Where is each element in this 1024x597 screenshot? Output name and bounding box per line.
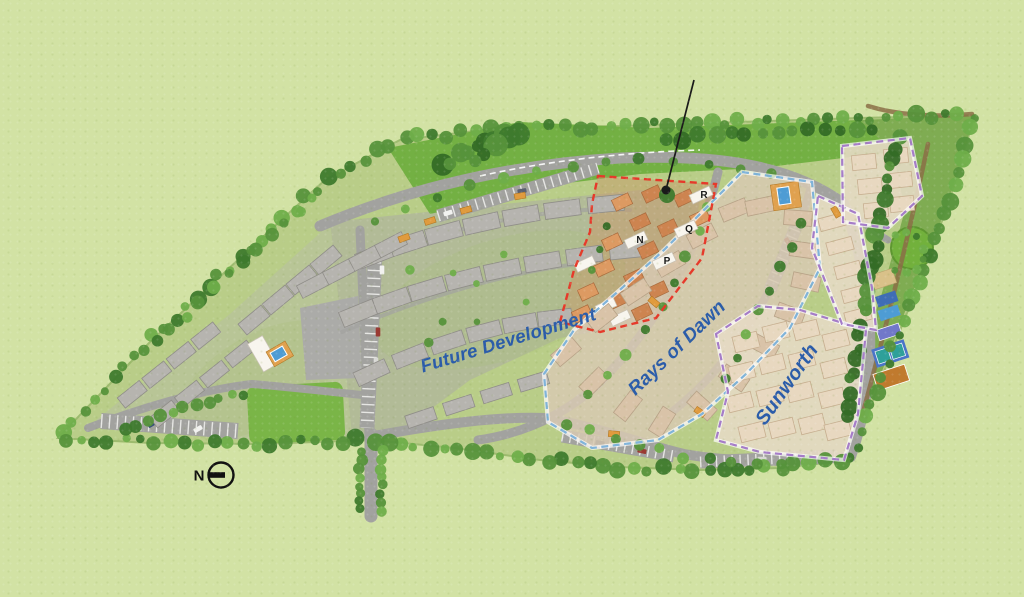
tree [169,408,179,418]
tree [523,299,530,306]
tree [633,153,645,165]
tree [899,315,911,327]
tree [401,204,410,213]
tree [210,269,222,281]
tree [251,441,262,452]
tree [884,161,894,171]
tree [962,119,978,135]
tree [136,435,145,444]
tree [885,359,894,368]
site-plan: Future Development Rays of Dawn Sunworth… [0,0,1024,597]
tree [182,312,193,323]
tree [66,417,77,428]
tree [439,318,447,326]
tree [689,126,705,142]
tree [655,458,672,475]
tree [450,270,457,277]
tree [464,179,476,191]
tree [941,109,950,118]
tree [772,126,785,139]
tree [321,438,334,451]
tree [925,111,938,124]
tree [903,268,912,277]
north-compass: N [194,463,234,488]
tree [902,228,910,236]
tree [844,373,854,383]
tree [882,173,892,183]
tree [473,280,480,287]
tree [584,424,594,434]
tree [204,397,216,409]
tree [877,191,894,208]
tree [262,438,277,453]
tree [99,435,113,449]
tree [146,436,160,450]
tree [607,121,616,130]
tree [741,329,751,339]
building-marker-r: R [700,190,708,201]
tree [758,128,769,139]
tree [265,228,279,242]
tree [426,129,437,140]
tree [752,458,763,469]
tree [869,384,886,401]
tree [800,121,815,136]
tree [192,439,204,451]
tree [834,454,850,470]
tree [588,266,596,274]
building [851,153,876,170]
tree [355,504,364,513]
tree [796,218,807,229]
tree [191,398,204,411]
building [857,177,882,194]
tree [882,113,891,122]
tree [684,463,700,479]
tree [937,206,952,221]
tree [568,161,579,172]
tree [633,117,650,134]
tree [354,496,363,505]
tree [59,434,73,448]
tree [522,453,535,466]
tree [162,323,174,335]
tree [532,166,541,175]
tree [152,335,164,347]
tree [81,406,91,416]
building-marker-q: Q [685,224,693,235]
tree [532,121,542,131]
tree [836,110,849,123]
tree [902,299,915,312]
tree [408,443,417,452]
tree [705,160,714,169]
tree [611,434,621,444]
tree [819,123,832,136]
tree [278,435,292,449]
site-plan-canvas: Future Development Rays of Dawn Sunworth… [0,0,1024,597]
tree [654,443,664,453]
tree [774,261,785,272]
tree [583,390,592,399]
tree [948,177,963,192]
tree [860,304,872,316]
tree [786,125,797,136]
tree [181,302,190,311]
tree [296,435,305,444]
tree [296,207,306,217]
tree [405,265,414,274]
tree [376,506,386,516]
tree [601,157,610,166]
tree [620,118,632,130]
tree [207,281,220,294]
tree [469,155,481,167]
tree [650,117,659,126]
tree [336,169,346,179]
tree [893,111,903,121]
tree [498,172,510,184]
tree [709,126,727,144]
tree [191,296,205,310]
tree [730,112,744,126]
compass-n-label: N [194,468,205,485]
tree [585,122,598,135]
car [380,266,385,275]
tree [822,112,833,123]
tree [641,325,650,334]
tree [762,115,771,124]
tree [353,463,364,474]
tree [866,124,877,135]
tree [208,434,222,448]
tree [907,105,925,123]
tree [787,242,797,252]
tree [375,489,384,498]
tree [143,416,154,427]
tree [858,427,867,436]
tree [849,121,866,138]
tree [356,489,365,498]
tree [670,278,679,287]
tree [954,150,971,167]
rays-pool [770,181,801,211]
tree [677,452,689,464]
tree [676,464,686,474]
tree [953,167,964,178]
tree [892,231,899,238]
tree [603,371,612,380]
tree [320,168,338,186]
tree [705,453,716,464]
tree [854,113,863,122]
building-marker-p: P [664,256,671,267]
tree [835,125,846,136]
tree [705,465,716,476]
tree [726,126,739,139]
tree [409,127,424,142]
tree [307,193,316,202]
tree [584,456,597,469]
tree [884,340,896,352]
tree [726,457,737,468]
tree [474,318,481,325]
tree [673,132,691,150]
tree [603,222,611,230]
tree [559,118,572,131]
tree [439,131,453,145]
compass-needle [208,472,226,478]
tree [119,423,132,436]
tree [154,409,167,422]
tree [913,275,928,290]
tree [765,287,774,296]
tree [101,387,109,395]
tree [236,255,250,269]
tree [221,436,234,449]
tree [659,118,675,134]
tree [371,217,379,225]
tree [129,351,139,361]
tree [77,436,85,444]
tree [572,456,584,468]
tree [423,441,439,457]
tree [380,139,394,153]
tree [355,473,364,482]
tree [841,410,854,423]
tree [433,193,442,202]
tree [919,245,929,255]
tree [660,133,673,146]
tree [865,116,874,125]
tree [542,455,557,470]
tree [249,243,263,257]
tree [500,251,508,259]
tree [378,445,389,456]
tree [117,361,127,371]
tree [620,349,632,361]
tree [928,232,941,245]
tree [496,452,504,460]
tree [239,391,249,401]
tree [464,443,481,460]
tree [949,106,964,121]
tree [543,119,554,130]
tree [737,127,751,141]
tree [920,256,927,263]
tree [90,395,100,405]
tree [776,459,786,469]
tree [336,436,351,451]
tree [378,479,388,489]
tree [225,269,234,278]
tree [854,443,863,452]
tree [913,233,920,240]
tree [138,345,149,356]
car [376,328,381,337]
tree [891,267,898,274]
tree [238,438,250,450]
tree [361,156,372,167]
tree [641,466,651,476]
tree [109,370,123,384]
tree [875,372,886,383]
tree [776,113,790,127]
tree [376,454,387,465]
tree [88,437,99,448]
tree [596,246,603,253]
tree [178,436,192,450]
tree [279,218,288,227]
tree [228,390,237,399]
tree [609,462,625,478]
tree [424,338,434,348]
building-marker-n: N [636,235,643,246]
tree [344,161,355,172]
tree [164,434,179,449]
tree [912,265,921,274]
tree [310,436,320,446]
tree [733,354,742,363]
tree [512,450,525,463]
tree [453,123,467,137]
tree [628,462,641,475]
tree [450,443,463,456]
tree [595,458,611,474]
tree [440,444,449,453]
tree [679,251,691,263]
tree [895,331,903,339]
